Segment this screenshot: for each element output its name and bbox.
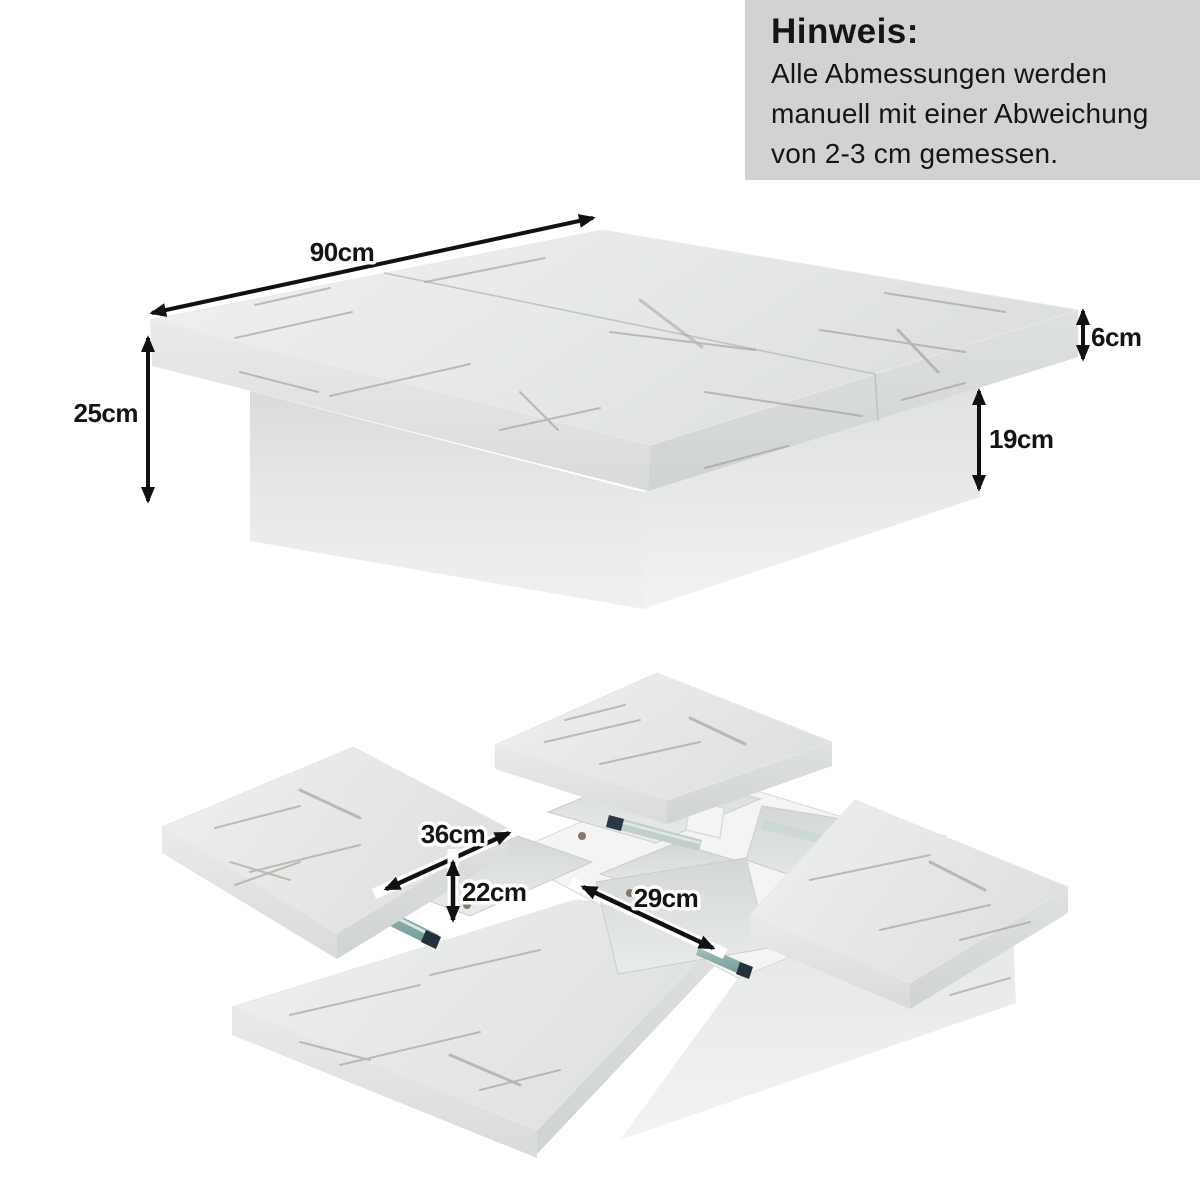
dim-label-90cm: 90cm <box>310 237 375 267</box>
dim-label-29cm: 29cm <box>634 883 699 913</box>
product-dimension-image: 90cm 25cm 6cm 19cm <box>0 0 1200 1200</box>
note-title: Hinweis: <box>771 10 1182 54</box>
note-line-2: manuell mit einer Abweichung <box>771 94 1182 134</box>
note-line-1: Alle Abmessungen werden <box>771 54 1182 94</box>
dim-label-36cm: 36cm <box>421 819 486 849</box>
dim-label-22cm: 22cm <box>462 877 527 907</box>
extended-table-view: 36cm 22cm 29cm <box>162 673 1068 1158</box>
assembled-table-view: 90cm 25cm 6cm 19cm <box>74 218 1142 609</box>
table-diagrams: 90cm 25cm 6cm 19cm <box>0 0 1200 1200</box>
dim-label-19cm: 19cm <box>989 424 1054 454</box>
note-line-3: von 2-3 cm gemessen. <box>771 134 1182 174</box>
dim-label-6cm: 6cm <box>1091 322 1142 352</box>
note-box: Hinweis: Alle Abmessungen werden manuell… <box>745 0 1200 180</box>
dim-label-25cm: 25cm <box>74 398 139 428</box>
